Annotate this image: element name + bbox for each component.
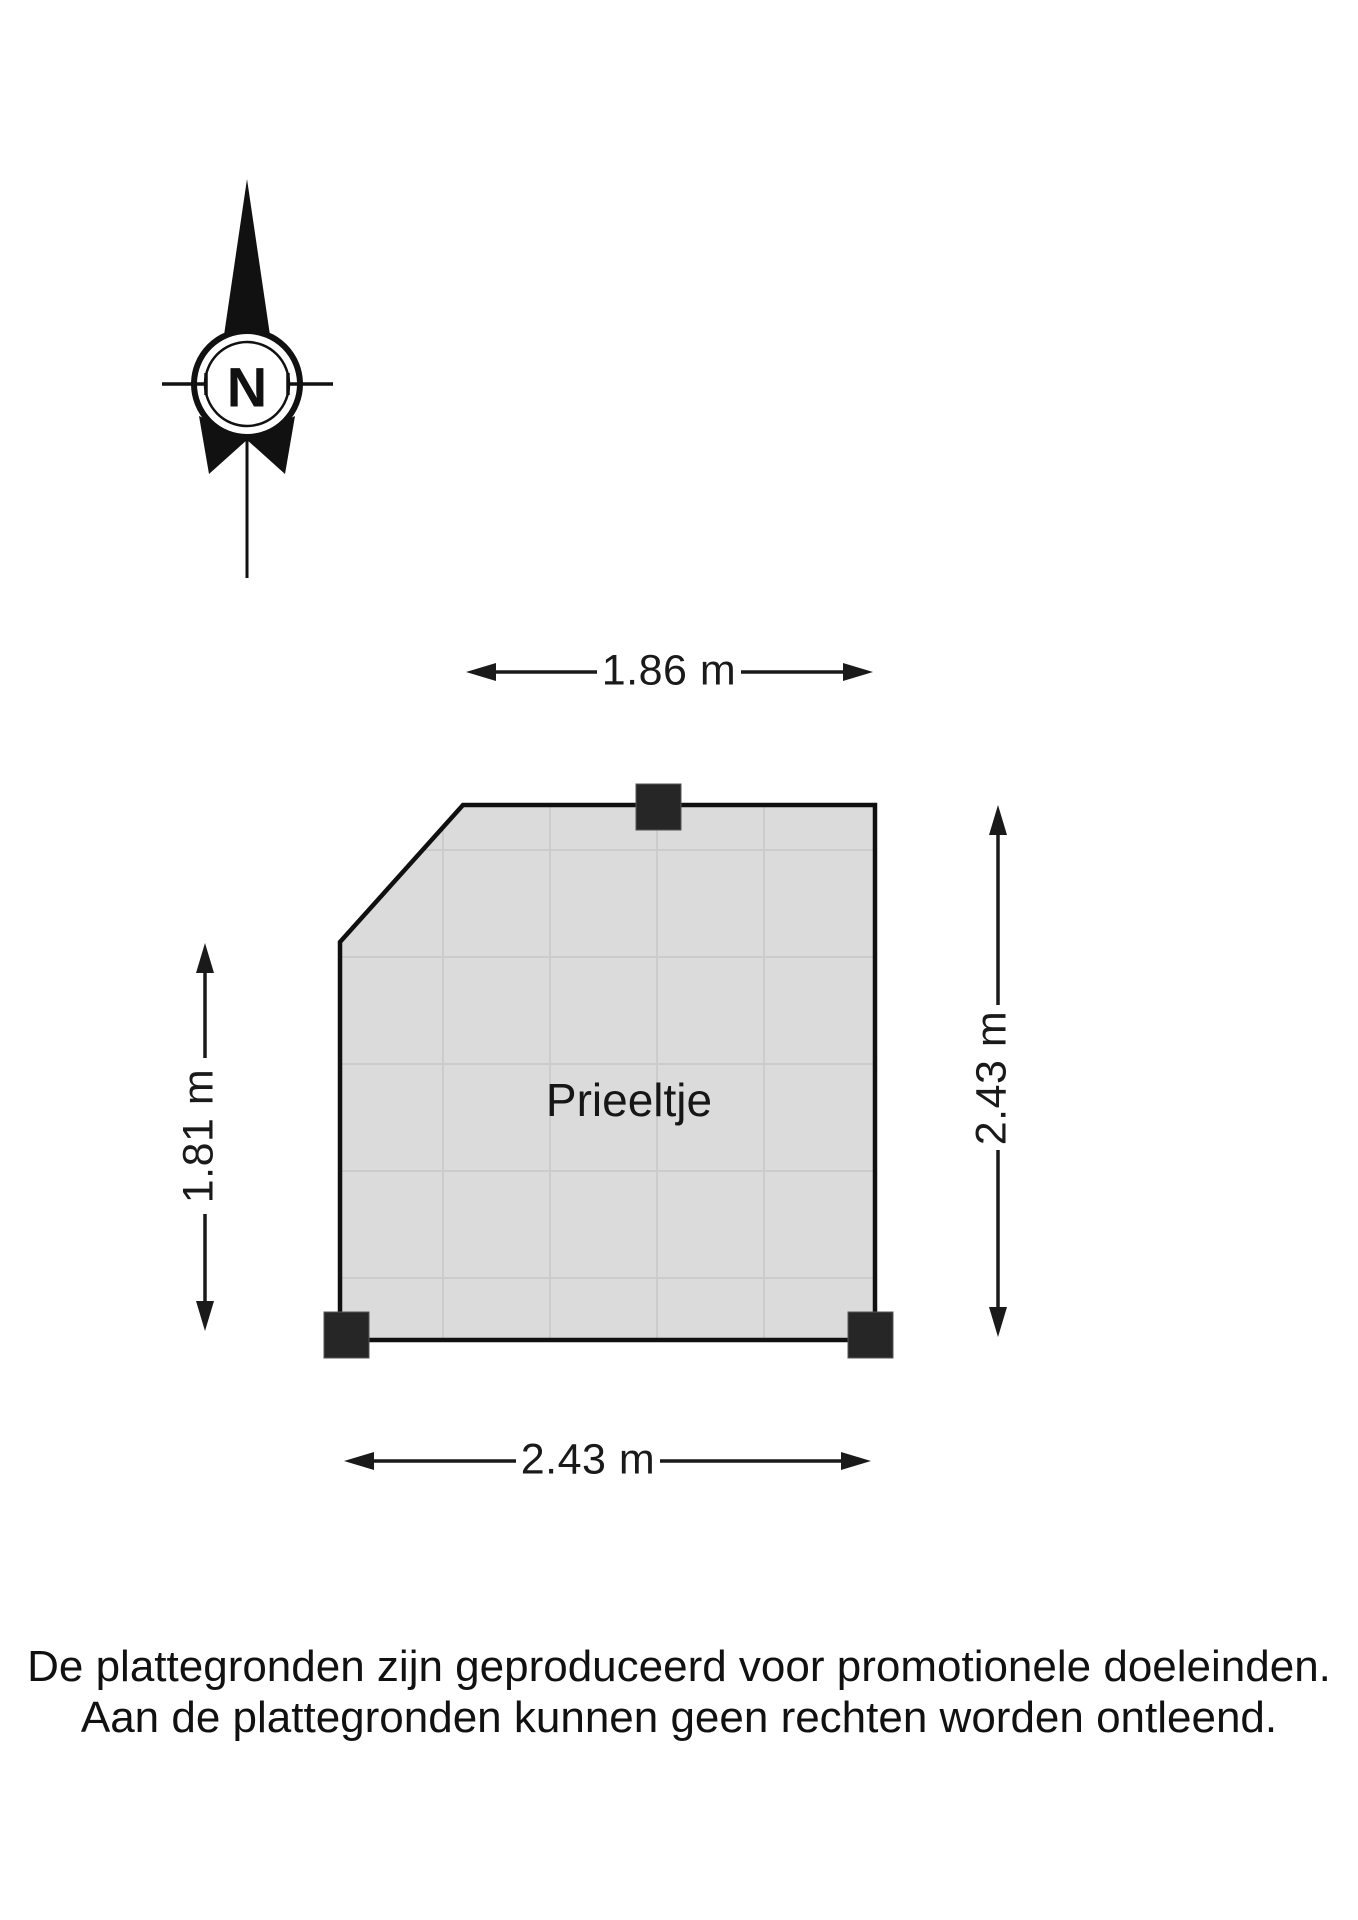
north-needle-icon bbox=[223, 179, 271, 342]
room-label: Prieeltje bbox=[546, 1073, 712, 1127]
dimension-bottom-label: 2.43 m bbox=[521, 1436, 655, 1485]
plan-shape bbox=[324, 784, 893, 1358]
disclaimer-line-1: De plattegronden zijn geproduceerd voor … bbox=[0, 1641, 1358, 1692]
disclaimer-text: De plattegronden zijn geproduceerd voor … bbox=[0, 1641, 1358, 1743]
compass-north-label: N bbox=[227, 355, 267, 420]
dimension-left-label: 1.81 m bbox=[175, 1069, 224, 1203]
post-marker-top bbox=[636, 784, 681, 830]
dimension-top-label: 1.86 m bbox=[602, 647, 736, 696]
disclaimer-line-2: Aan de plattegronden kunnen geen rechten… bbox=[0, 1692, 1358, 1743]
post-marker-bottom-left bbox=[324, 1312, 369, 1358]
post-marker-bottom-right bbox=[848, 1312, 893, 1358]
dimension-right-label: 2.43 m bbox=[968, 1011, 1017, 1145]
floorplan-graphic bbox=[0, 0, 1358, 1920]
floorplan-page: N 1.86 m 1.81 m 2.43 m 2.43 m Prieeltje … bbox=[0, 0, 1358, 1920]
